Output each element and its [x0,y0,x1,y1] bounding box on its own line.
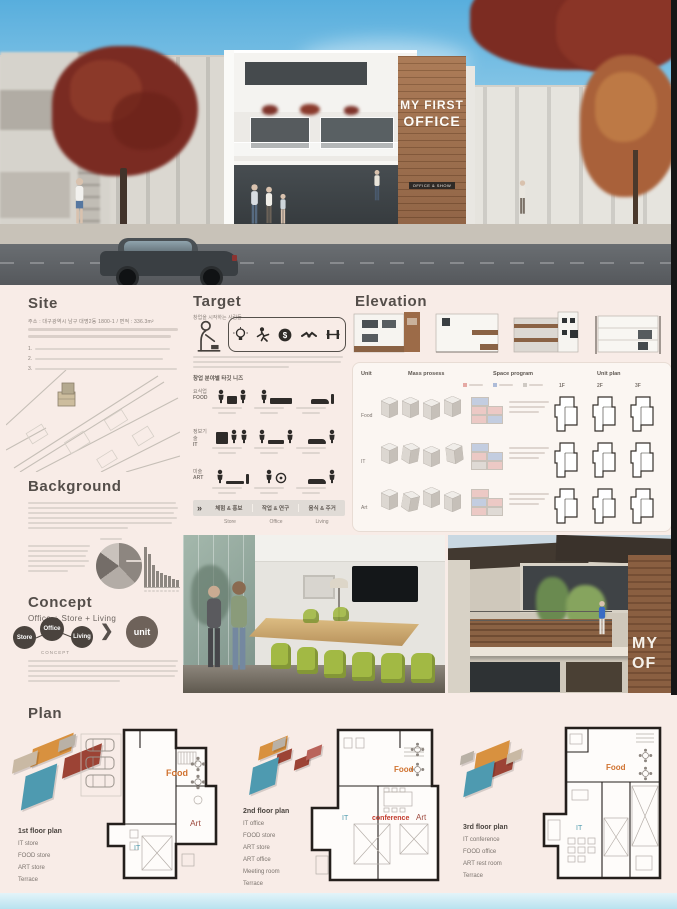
concept-unit-circle: unit [126,616,158,648]
needs-row-label-art: 미술 ART [193,468,210,481]
panel-header-unitplan: Unit plan [597,371,621,377]
hero-render: MY FIRST OFFICE OFFICE & SHOW [0,0,677,285]
pictogram-food-living [300,384,344,404]
pie-label-placeholder [100,538,122,540]
chair [411,653,435,683]
footer-office-label: 작업 & 연구 [253,504,300,512]
photo-sign-line2: OF [632,655,656,673]
space-program-art [471,489,503,516]
persona-icon [195,320,223,354]
pictogram-art-store [212,464,252,484]
target-title: Target [193,293,241,310]
concept-caption: CONCEPT [41,650,70,655]
panel-header-space: Space program [493,371,533,377]
room-label-conference: conference [372,815,409,822]
coin-icon: $ [278,328,292,342]
pedestrian [372,168,382,204]
person-jacket [225,569,253,683]
sign-tagline: OFFICE & SHOW [409,182,456,189]
plan1-caption: 1st floor plan IT storeFOOD store ART st… [18,828,62,889]
tv-screen [352,566,418,602]
unit-plan-it-3f [629,441,655,479]
floor-2f-label: 2F [597,383,603,389]
unit-plan-art-3f [629,487,655,525]
row-it-label: IT [361,459,365,465]
floorplan-1: Food IT Art [78,726,220,886]
site-title: Site [28,295,58,312]
elevation-thumbnails [352,310,670,356]
wood-rail [462,619,612,647]
unit-panel: Unit Mass prosess Space program Unit pla… [352,362,672,532]
plan-title: Plan [28,705,62,722]
pie-label-placeholder [126,560,142,562]
pictogram-it-living [300,424,344,444]
svg-text:$: $ [283,331,288,340]
plan3-title: 3rd floor plan [463,824,508,831]
balcony-slab [456,647,652,656]
space-caption-art [509,493,549,508]
chevron-right-icon: ❯ [100,621,113,641]
needs-captions [212,447,344,457]
concept-paragraph-placeholder [28,660,178,685]
panel-rows: Food IT [353,395,671,531]
unit-plan-art-2f [591,487,617,525]
meeting-table [249,618,419,646]
unit-plan-it-1f [553,441,579,479]
elevation-2 [432,310,506,356]
background-title: Background [28,478,122,495]
chair [297,647,318,674]
room-label-food: Food [166,768,188,778]
pedestrian [263,184,275,228]
needs-footer: » 체험 & 홍보 작업 & 연구 음식 & 주거 [193,500,345,516]
background-paragraph-placeholder [28,502,178,532]
room-label-art: Art [190,818,202,828]
sign-title-line2: OFFICE [398,113,466,129]
needs-footer-en: Store Office Living [193,519,345,525]
plan2-title: 2nd floor plan [243,808,289,815]
panel-header-unit: Unit [361,371,372,377]
site-address: 주소 : 대구광역시 남구 대명2동 1800-1 / 면적 : 336.3m² [28,318,154,325]
room-label-it: IT [342,815,349,822]
pictogram-food-store [212,384,252,404]
chair [352,652,375,681]
site-marker [58,383,75,406]
elevation-3 [512,310,586,356]
site-list-placeholder: 1. 2. 3. [28,346,180,372]
photo-wood-sign: MY OF [628,555,677,693]
runner-icon [256,327,270,342]
sign-title-line1: MY FIRST [398,98,466,112]
tree-trunk [633,150,638,232]
pedestrian [517,178,528,218]
panel-header-mass: Mass prosess [408,371,444,377]
photo-sign-line1: MY [632,635,658,653]
space-program-it [471,443,503,470]
plan1-title: 1st floor plan [18,828,62,835]
pictogram-it-store [212,424,252,444]
elevation-4 [592,310,666,356]
concept-circle-store: Store [13,626,36,649]
board-edge [671,0,677,695]
floorplan-2: Food IT conference Art [300,728,440,886]
background-paragraph2-placeholder [28,545,90,575]
lamp [330,578,348,588]
car [100,238,238,284]
space-caption-it [509,447,549,462]
floor-3f-label: 3F [635,383,641,389]
store-en-label: Store [207,519,253,525]
needs-title: 창업 분야별 타깃 니즈 [193,374,243,382]
elevation-title: Elevation [355,293,427,310]
office-en-label: Office [253,519,299,525]
pictogram-art-living [300,464,344,484]
concept-title: Concept [28,594,92,611]
footer-living-label: 음식 & 주거 [299,504,345,512]
space-program-food [471,397,503,424]
elevation-1 [352,310,426,356]
floor-1f-label: 1F [559,383,565,389]
space-caption-food [509,401,549,416]
concept-circle-office: Office [40,617,64,641]
unit-plan-food-2f [591,395,617,433]
pedestrian-child [278,192,288,228]
pedestrian [248,182,261,228]
site-map [6,370,180,472]
fitness-icon [325,328,341,341]
bar-labels-placeholder [144,590,180,595]
person-suit [201,573,227,681]
needs-captions [212,487,344,497]
background-pie-chart [96,543,142,589]
chair [333,607,349,621]
plan2-caption: 2nd floor plan IT officeFOOD store ART s… [243,808,289,893]
footer-store-label: 체험 & 홍보 [206,504,253,512]
pictogram-art-work [256,464,296,484]
unit-plan-food-3f [629,395,655,433]
chair [303,609,319,623]
row-art-label: Art [361,505,367,511]
presentation-board: MY FIRST OFFICE OFFICE & SHOW [0,0,677,909]
site-paragraph-placeholder [28,328,178,342]
lower-window [470,662,560,692]
bottom-strip [0,893,677,909]
needs-row-label-food: 요식업 FOOD [193,388,210,401]
pictogram-food-work [256,384,296,404]
mass-process-it [381,443,461,464]
unit-plan-food-1f [553,395,579,433]
space-program-legend [463,383,543,387]
mass-process-art [381,489,461,510]
lower-interior [566,662,622,692]
unit-plan-it-2f [591,441,617,479]
balcony-person [596,597,608,643]
plan3-caption: 3rd floor plan IT conferenceFOOD office … [463,824,508,885]
room-label-it: IT [576,825,583,832]
handshake-icon [301,329,317,341]
chair [271,643,291,669]
needs-row-label-it: 정보기술 IT [193,428,210,448]
room-label-art: Art [416,813,427,822]
room-label-food: Food [394,765,414,774]
chair [324,650,346,678]
idea-bubble: $ [228,317,346,352]
interior-photo [183,535,445,693]
floorplan-3: Food IT [538,726,668,886]
chair [381,653,405,683]
row-food-label: Food [361,413,372,419]
pedestrian [72,175,87,229]
unit-plan-art-1f [553,487,579,525]
lightbulb-icon [233,327,248,343]
needs-captions [212,407,344,417]
wheel-icon [275,471,287,484]
pictogram-it-work [256,424,296,444]
room-label-it: IT [134,845,141,852]
room-label-food: Food [606,763,626,772]
living-en-label: Living [299,519,345,525]
tree-trunk [120,168,127,230]
wood-sign: MY FIRST OFFICE OFFICE & SHOW [398,56,466,232]
chevron-icon: » [197,503,202,513]
concept-circle-living: Living [71,626,93,648]
exterior-photo: MY OF [448,535,677,693]
mass-process-food [381,397,461,418]
background-bar-chart [144,545,180,588]
target-paragraph-placeholder [193,356,343,371]
